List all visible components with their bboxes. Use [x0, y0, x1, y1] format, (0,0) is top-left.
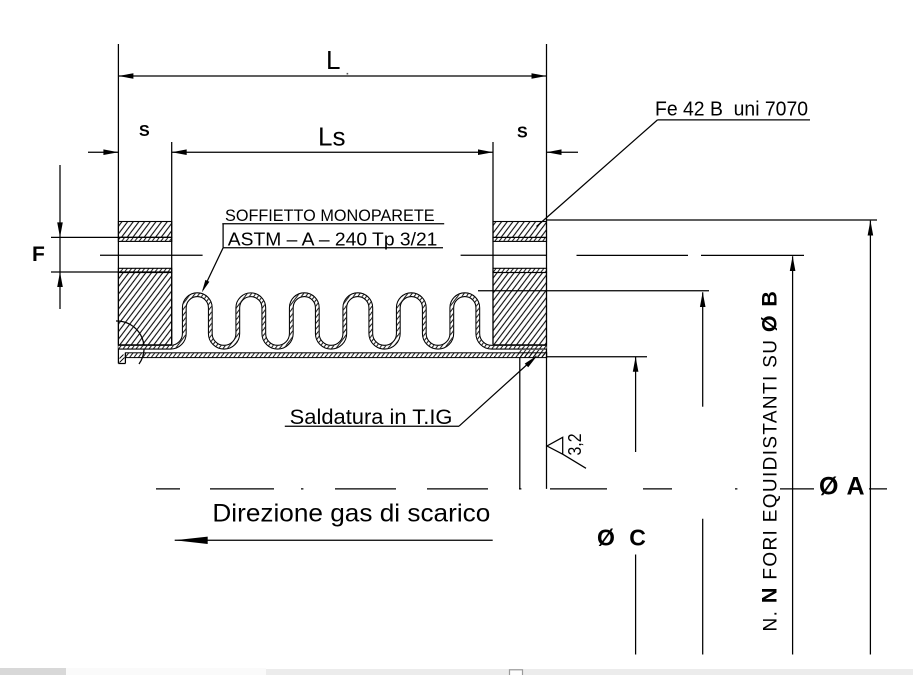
svg-text:S: S	[517, 125, 528, 142]
svg-text:Ø A: Ø A	[819, 473, 866, 501]
svg-text:L: L	[326, 45, 340, 75]
svg-text:Direzione gas di scarico: Direzione gas di scarico	[212, 500, 490, 528]
svg-text:F: F	[32, 243, 45, 266]
svg-text:ASTM – A – 240 Tp 3/21: ASTM – A – 240 Tp 3/21	[228, 230, 438, 250]
svg-text:Fe 42 B uni 7070: Fe 42 B uni 7070	[655, 99, 808, 121]
svg-text:3,2: 3,2	[565, 434, 585, 456]
svg-text:Ø C: Ø C	[597, 525, 650, 551]
svg-text:Ls: Ls	[318, 122, 345, 152]
svg-text:N. N FORI EQUIDISTANTI SU Ø B: N. N FORI EQUIDISTANTI SU Ø B	[758, 290, 782, 632]
svg-text:S: S	[139, 123, 150, 140]
svg-text:SOFFIETTO MONOPARETE: SOFFIETTO MONOPARETE	[225, 206, 435, 225]
svg-text:Saldatura in T.IG: Saldatura in T.IG	[290, 406, 453, 429]
